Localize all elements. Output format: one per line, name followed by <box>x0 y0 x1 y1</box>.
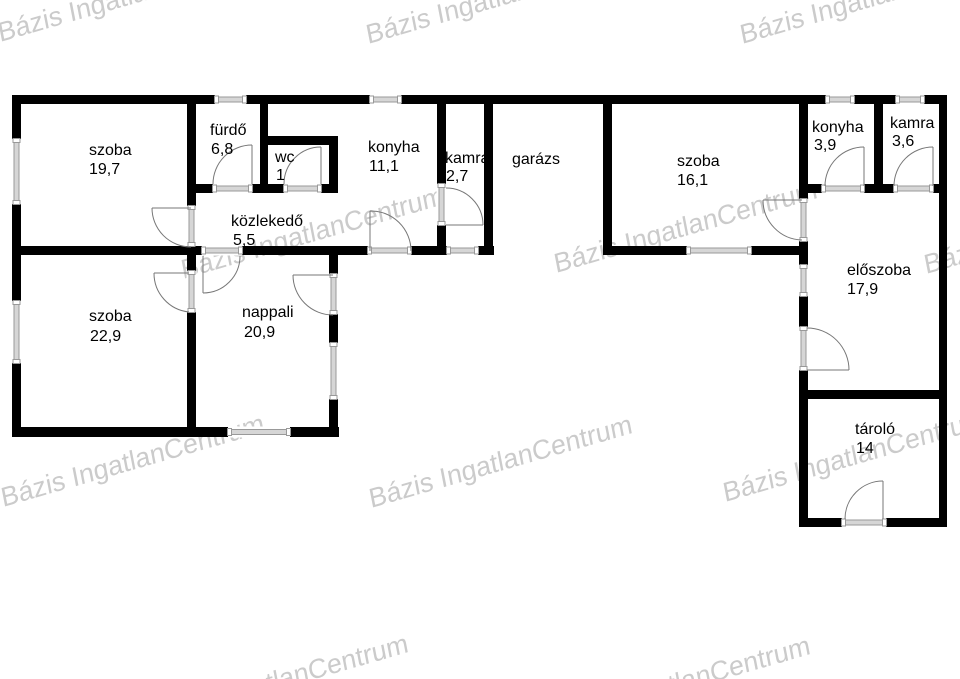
svg-text:tároló: tároló <box>855 421 895 438</box>
svg-text:16,1: 16,1 <box>677 172 708 189</box>
svg-text:konyha: konyha <box>812 119 864 136</box>
svg-text:3,6: 3,6 <box>892 133 914 150</box>
svg-text:szoba: szoba <box>677 153 720 170</box>
svg-text:fürdő: fürdő <box>210 122 247 139</box>
svg-text:19,7: 19,7 <box>89 161 120 178</box>
svg-text:11,1: 11,1 <box>369 158 399 175</box>
svg-text:wc: wc <box>274 149 295 166</box>
svg-text:kamra: kamra <box>445 150 490 167</box>
svg-text:nappali: nappali <box>242 304 294 321</box>
svg-text:közlekedő: közlekedő <box>231 213 303 230</box>
svg-text:3,9: 3,9 <box>814 137 836 154</box>
svg-text:17,9: 17,9 <box>847 281 878 298</box>
svg-text:konyha: konyha <box>368 139 420 156</box>
svg-text:14: 14 <box>856 440 874 457</box>
svg-text:2,7: 2,7 <box>446 168 468 185</box>
svg-text:1: 1 <box>276 167 285 184</box>
svg-text:22,9: 22,9 <box>90 328 121 345</box>
svg-text:szoba: szoba <box>89 142 132 159</box>
svg-text:szoba: szoba <box>89 308 132 325</box>
svg-text:20,9: 20,9 <box>244 324 275 341</box>
svg-text:kamra: kamra <box>890 115 935 132</box>
svg-text:6,8: 6,8 <box>211 141 233 158</box>
svg-text:5,5: 5,5 <box>233 232 255 249</box>
svg-text:garázs: garázs <box>512 151 560 168</box>
svg-text:előszoba: előszoba <box>847 262 911 279</box>
